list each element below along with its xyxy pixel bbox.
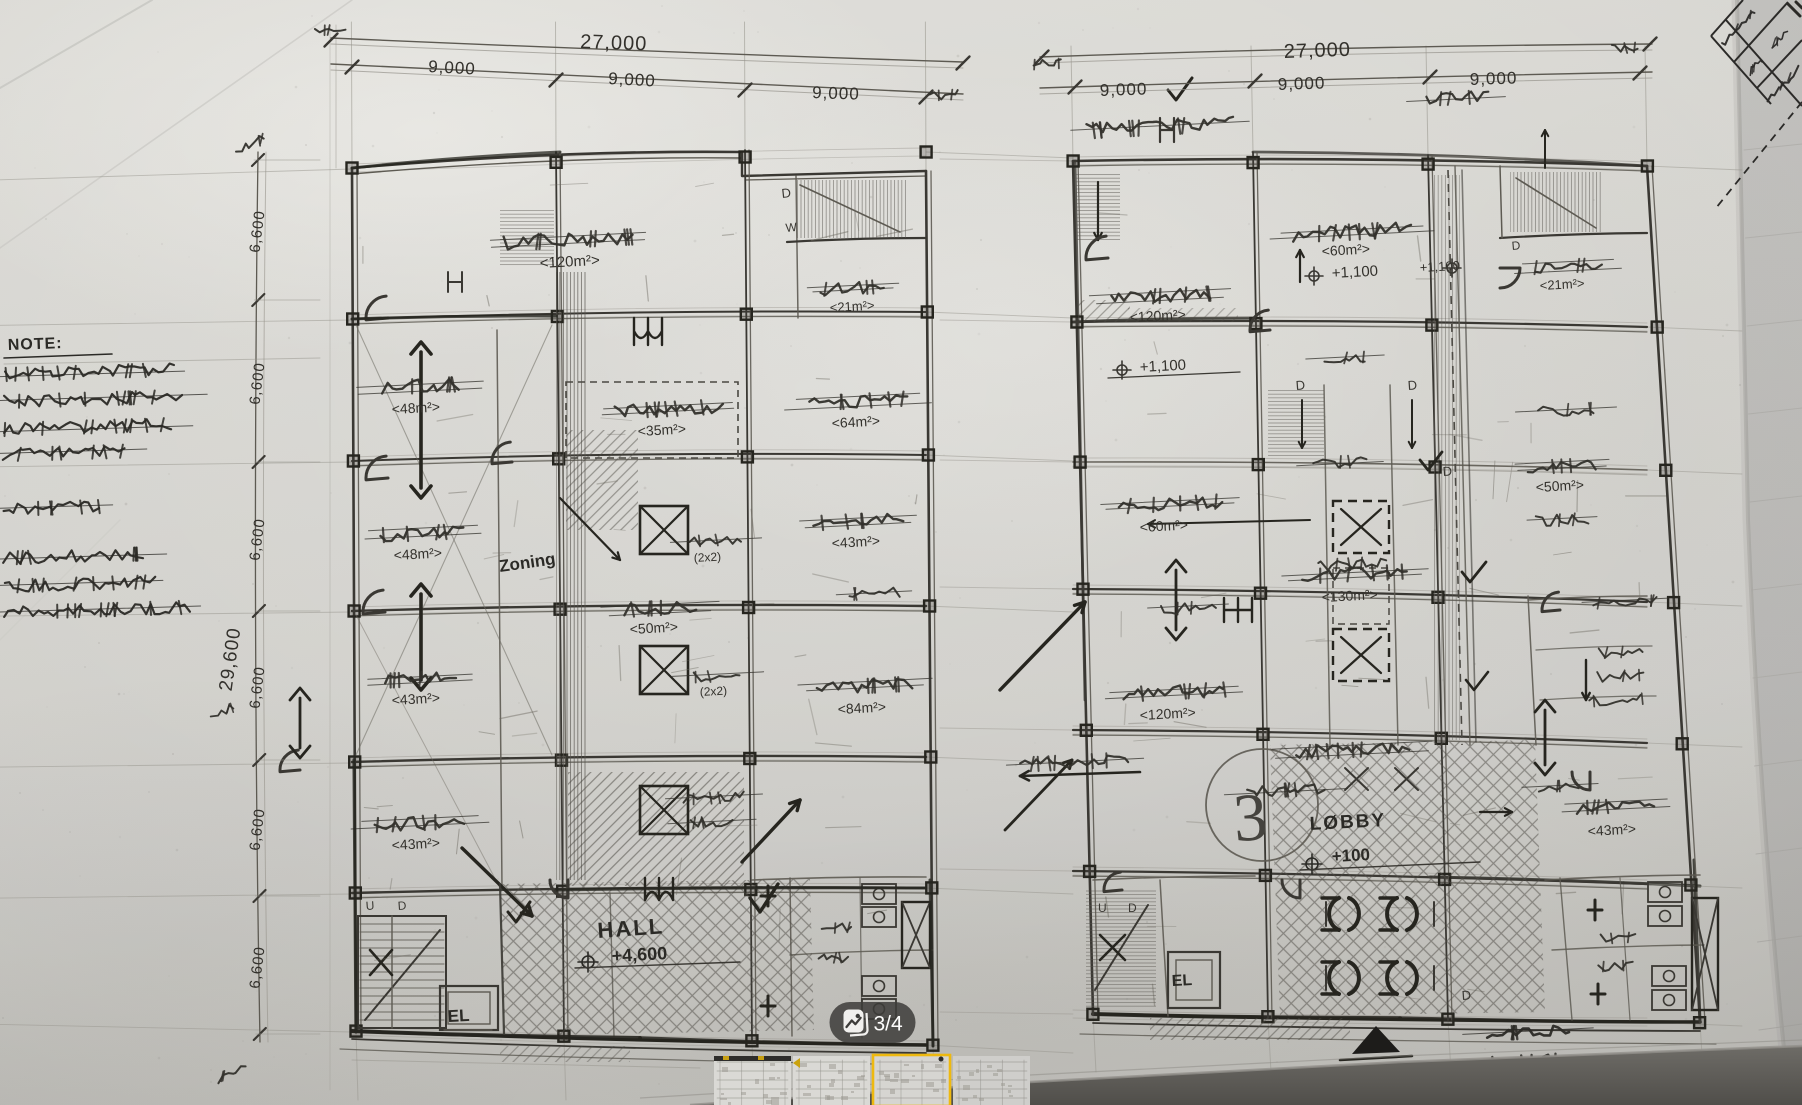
svg-text:<64m²>: <64m²> — [831, 412, 880, 431]
svg-text:D: D — [397, 898, 407, 913]
svg-text:U: U — [365, 898, 375, 913]
svg-text:U: U — [1098, 901, 1107, 915]
svg-text:D: D — [781, 185, 792, 201]
svg-text:<43m²>: <43m²> — [1587, 820, 1636, 839]
svg-text:27,000: 27,000 — [580, 31, 648, 55]
svg-text:EL: EL — [1171, 972, 1193, 990]
svg-text:D: D — [1407, 377, 1417, 393]
svg-text:D: D — [1442, 463, 1452, 479]
svg-text:<120m²>: <120m²> — [1139, 704, 1196, 723]
svg-text:3/4: 3/4 — [874, 1013, 904, 1036]
svg-text:+1,100: +1,100 — [1139, 357, 1186, 376]
svg-text:D: D — [1295, 377, 1305, 393]
svg-text:9,000: 9,000 — [1099, 79, 1147, 100]
svg-text:W: W — [785, 220, 798, 235]
svg-text:9,000: 9,000 — [1469, 68, 1517, 89]
svg-text:<43m²>: <43m²> — [831, 532, 880, 551]
svg-text:<21m²>: <21m²> — [829, 298, 875, 315]
svg-text:<21m²>: <21m²> — [1539, 276, 1585, 293]
svg-text:EL: EL — [447, 1006, 470, 1026]
svg-text:D: D — [1128, 901, 1137, 915]
svg-text:<130m²>: <130m²> — [1321, 586, 1378, 605]
svg-text:<60m²>: <60m²> — [1139, 516, 1188, 535]
svg-text:<43m²>: <43m²> — [391, 834, 440, 853]
svg-text:HALL: HALL — [597, 913, 665, 943]
svg-text:<60m²>: <60m²> — [1321, 240, 1370, 259]
svg-text:<50m²>: <50m²> — [1535, 476, 1584, 495]
svg-text:<48m²>: <48m²> — [393, 544, 442, 563]
svg-text:<35m²>: <35m²> — [637, 420, 686, 439]
svg-text:(2x2): (2x2) — [693, 550, 721, 565]
svg-text:<43m²>: <43m²> — [391, 689, 440, 708]
svg-text:<120m²>: <120m²> — [1129, 306, 1186, 325]
svg-text:+100: +100 — [1331, 845, 1370, 866]
svg-text:NOTE:: NOTE: — [8, 335, 63, 354]
svg-text:9,000: 9,000 — [1277, 73, 1325, 94]
svg-text:<120m²>: <120m²> — [539, 252, 600, 272]
svg-text:9,000: 9,000 — [812, 83, 860, 104]
svg-text:D: D — [1461, 987, 1471, 1003]
svg-text:D: D — [1511, 238, 1521, 253]
svg-text:<84m²>: <84m²> — [837, 698, 886, 717]
svg-text:27,000: 27,000 — [1283, 39, 1351, 63]
svg-text:+4,600: +4,600 — [611, 943, 668, 966]
svg-text:9,000: 9,000 — [428, 57, 476, 78]
svg-text:<50m²>: <50m²> — [629, 618, 678, 637]
svg-text:(2x2): (2x2) — [699, 684, 727, 699]
svg-text:LØBBY: LØBBY — [1309, 810, 1386, 835]
svg-text:9,000: 9,000 — [608, 69, 656, 90]
svg-text:<48m²>: <48m²> — [391, 398, 440, 417]
svg-text:+1,100: +1,100 — [1331, 263, 1378, 282]
